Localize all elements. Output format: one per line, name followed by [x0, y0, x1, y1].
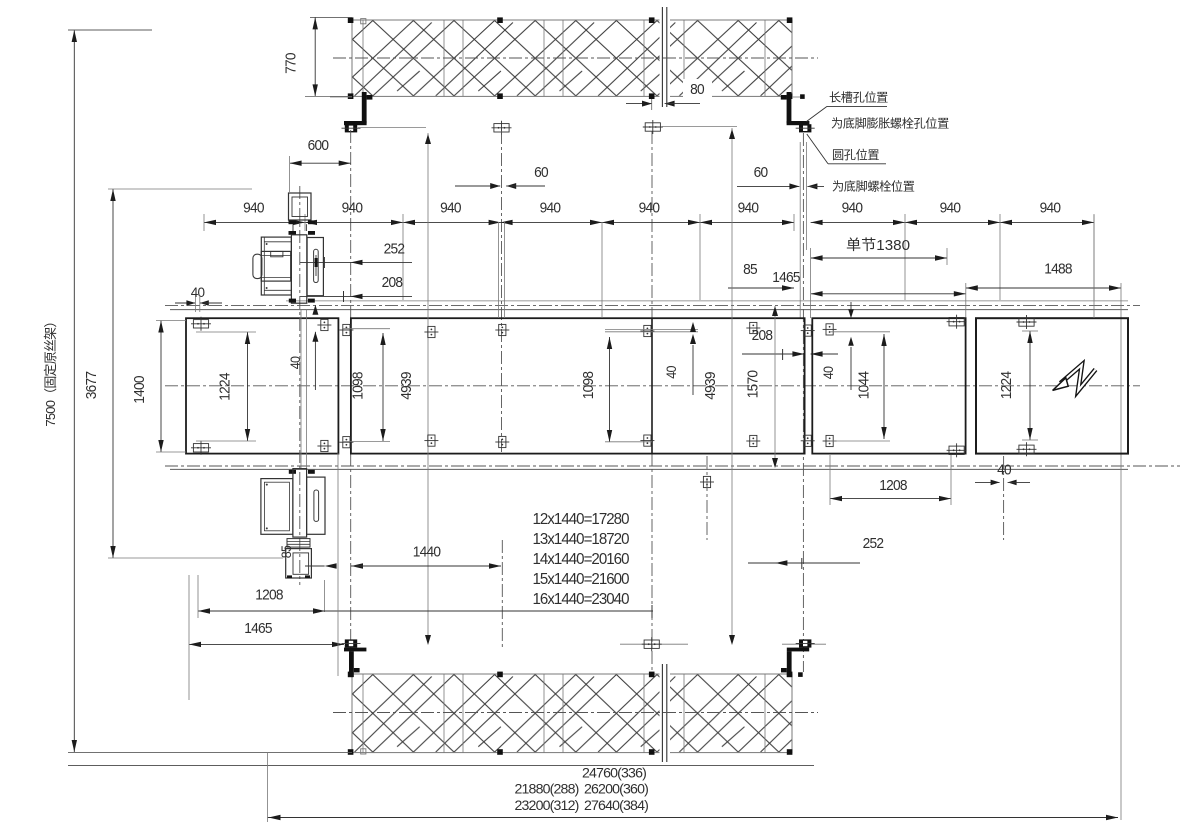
svg-text:252: 252 [863, 535, 884, 552]
svg-text:1465: 1465 [244, 620, 272, 637]
svg-text:940: 940 [738, 200, 759, 217]
svg-text:940: 940 [639, 200, 660, 217]
svg-text:4939: 4939 [398, 372, 415, 400]
svg-text:21880(288): 21880(288) [515, 782, 579, 797]
svg-text:940: 940 [540, 200, 561, 217]
svg-text:23200(312): 23200(312) [515, 798, 579, 813]
svg-text:208: 208 [752, 327, 773, 344]
svg-text:940: 940 [940, 200, 961, 217]
svg-text:1208: 1208 [255, 587, 283, 604]
svg-text:1224: 1224 [217, 373, 234, 401]
svg-text:24760(336): 24760(336) [582, 766, 646, 781]
svg-text:26200(360): 26200(360) [584, 782, 648, 797]
svg-text:16x1440=23040: 16x1440=23040 [533, 591, 630, 608]
svg-text:600: 600 [308, 137, 329, 154]
svg-text:单节1380: 单节1380 [846, 237, 910, 254]
svg-text:208: 208 [382, 274, 403, 291]
svg-text:60: 60 [754, 164, 768, 181]
svg-text:15x1440=21600: 15x1440=21600 [533, 571, 630, 588]
svg-text:为底脚螺栓位置: 为底脚螺栓位置 [832, 179, 915, 194]
svg-text:13x1440=18720: 13x1440=18720 [533, 531, 630, 548]
svg-text:27640(384): 27640(384) [584, 798, 648, 813]
svg-text:40: 40 [191, 285, 205, 300]
svg-text:1570: 1570 [745, 370, 762, 398]
svg-text:1440: 1440 [413, 544, 441, 561]
svg-text:1400: 1400 [131, 376, 148, 404]
svg-text:7500（固定原丝架）: 7500（固定原丝架） [43, 315, 58, 426]
svg-text:940: 940 [440, 200, 461, 217]
svg-text:940: 940 [342, 200, 363, 217]
svg-text:3677: 3677 [83, 371, 100, 399]
svg-text:85: 85 [743, 261, 757, 278]
svg-text:1208: 1208 [879, 477, 907, 494]
svg-text:252: 252 [384, 241, 405, 258]
svg-text:圆孔位置: 圆孔位置 [832, 147, 879, 162]
svg-text:12x1440=17280: 12x1440=17280 [533, 511, 630, 528]
svg-text:4939: 4939 [702, 372, 719, 400]
svg-text:40: 40 [288, 357, 303, 370]
svg-text:80: 80 [690, 81, 704, 98]
svg-text:940: 940 [842, 200, 863, 217]
svg-text:1488: 1488 [1044, 261, 1072, 278]
svg-text:60: 60 [534, 164, 548, 181]
svg-text:40: 40 [821, 367, 836, 380]
svg-text:为底脚膨胀螺栓孔位置: 为底脚膨胀螺栓孔位置 [831, 116, 949, 131]
svg-text:40: 40 [664, 366, 679, 379]
svg-text:1465: 1465 [772, 269, 800, 286]
svg-text:长槽孔位置: 长槽孔位置 [829, 90, 888, 105]
svg-text:940: 940 [243, 200, 264, 217]
svg-text:940: 940 [1040, 200, 1061, 217]
svg-text:40: 40 [997, 462, 1011, 479]
svg-text:1098: 1098 [580, 371, 597, 399]
svg-text:85: 85 [279, 546, 294, 559]
svg-text:1044: 1044 [856, 371, 873, 399]
svg-text:1098: 1098 [350, 372, 367, 400]
svg-text:770: 770 [283, 53, 300, 74]
svg-text:1224: 1224 [998, 371, 1015, 399]
svg-text:14x1440=20160: 14x1440=20160 [533, 551, 630, 568]
